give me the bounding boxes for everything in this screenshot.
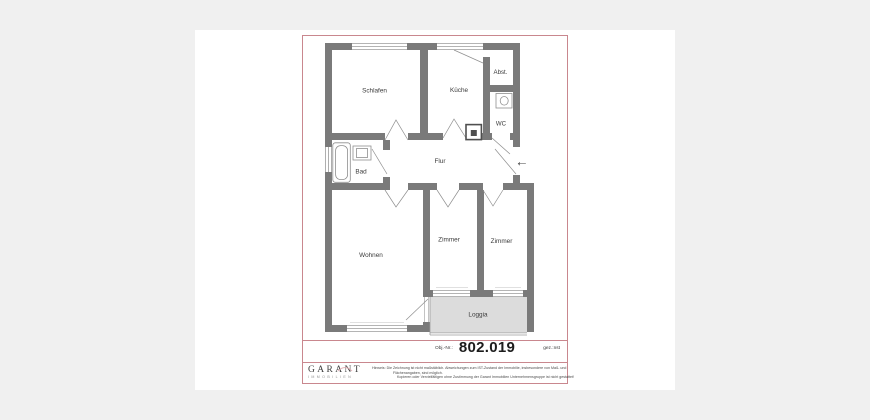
drawn-by-label: gez.:nst	[543, 346, 560, 351]
logo-roof-icon	[337, 364, 353, 372]
walls	[325, 43, 534, 332]
entrance-arrow-icon: ←	[515, 154, 529, 169]
object-number-row: Obj.-Nr.: 802.019 gez.:nst	[302, 340, 568, 363]
room-label-kueche: Küche	[450, 87, 469, 94]
object-number-value: 802.019	[459, 339, 515, 356]
footer-row: GARANT IMMOBILIEN Hinweis: Die Zeichnung…	[302, 362, 568, 384]
room-label-wohnen: Wohnen	[359, 252, 383, 259]
disclaimer-line-3: Kopieren oder Vervielfältigen ohne Zusti…	[372, 375, 574, 380]
room-label-bad: Bad	[355, 169, 367, 176]
garant-logo: GARANT IMMOBILIEN	[303, 366, 370, 380]
bath-sink-icon	[353, 146, 371, 160]
room-label-abstellraum: Abst.	[494, 69, 508, 76]
room-label-flur: Flur	[434, 158, 446, 165]
room-label-loggia: Loggia	[468, 312, 488, 319]
wc-sink-icon	[496, 94, 512, 109]
room-label-wc: WC	[496, 121, 507, 128]
room-label-zimmer-2: Zimmer	[491, 238, 514, 245]
shaft-icon	[466, 125, 481, 140]
document-page: ← Schlafen Küche Abst. WC Flur Bad Wohne…	[195, 30, 675, 390]
disclaimer-text: Hinweis: Die Zeichnung ist nicht maßstäb…	[370, 366, 577, 380]
room-label-zimmer-1: Zimmer	[438, 237, 461, 244]
floorplan-drawing: ← Schlafen Küche Abst. WC Flur Bad Wohne…	[303, 36, 567, 340]
room-label-schlafen: Schlafen	[362, 88, 387, 95]
floorplan-frame: ← Schlafen Küche Abst. WC Flur Bad Wohne…	[302, 35, 568, 341]
object-number-label: Obj.-Nr.:	[435, 346, 453, 351]
bathtub-icon	[333, 143, 351, 183]
logo-subtitle: IMMOBILIEN	[308, 375, 370, 380]
